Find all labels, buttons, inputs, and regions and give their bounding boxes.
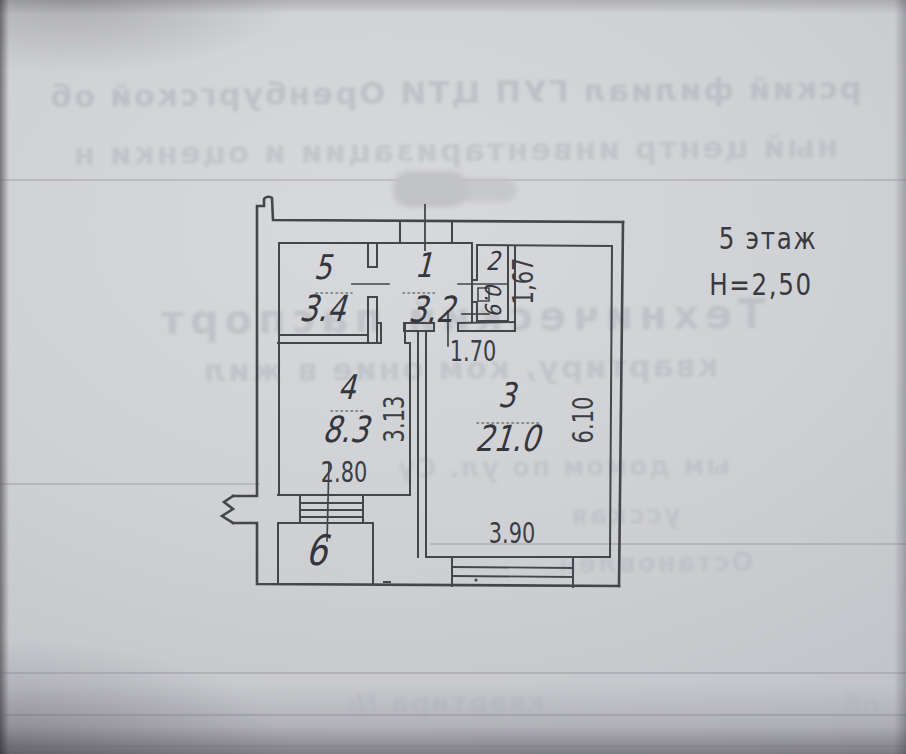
dimension-3-90: 3.90 — [489, 516, 535, 550]
room-2-area: 0.9 — [480, 282, 505, 314]
room-3-area: 21.0 — [474, 418, 543, 459]
scan-specks — [383, 578, 478, 583]
room-4-number: 4 — [337, 367, 357, 407]
dimension-2-80: 2.80 — [321, 455, 367, 489]
dimension-1-67: 1,67 — [507, 258, 540, 305]
room-2-number: 2 — [485, 246, 501, 276]
scanned-floor-plan-page: рский филиал ГУП ЦТИ Оренбургской об ный… — [0, 0, 906, 754]
room-5-area: 3.4 — [298, 288, 348, 329]
room-1-area: 3.2 — [407, 289, 457, 330]
dimension-6-10: 6.10 — [567, 397, 600, 444]
floor-plan-drawing — [0, 0, 906, 754]
ceiling-height-label: H=2,50 — [709, 267, 813, 302]
room-1-number: 1 — [414, 245, 434, 285]
room-3-number: 3 — [497, 375, 517, 415]
floor-label: 5 этаж — [719, 221, 817, 256]
room-6-number: 6 — [304, 526, 330, 575]
dimension-3-13: 3.13 — [378, 396, 411, 443]
dimension-1-70: 1.70 — [450, 334, 496, 368]
room-5-number: 5 — [313, 247, 333, 287]
room-4-area: 8.3 — [321, 409, 371, 450]
